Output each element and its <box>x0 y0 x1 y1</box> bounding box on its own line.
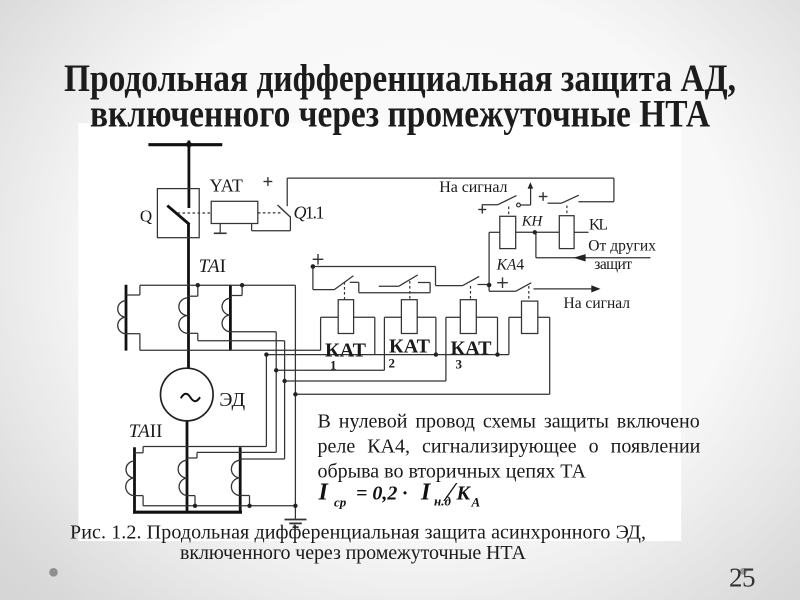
svg-text:А: А <box>471 495 481 510</box>
svg-text:К: К <box>456 483 472 505</box>
svg-text:На сигнал: На сигнал <box>564 295 631 312</box>
svg-text:3: 3 <box>456 357 463 372</box>
svg-text:КН: КН <box>521 214 544 230</box>
svg-text:включенного через промежуточны: включенного через промежуточные НТА <box>90 93 710 136</box>
svg-text:включенного через промежуточны: включенного через промежуточные НТА <box>180 542 527 564</box>
svg-text:1: 1 <box>330 358 337 373</box>
svg-text:KL: KL <box>589 216 608 233</box>
svg-text:ТАII: ТАII <box>129 421 163 442</box>
svg-text:Рис. 1.2. Продольная дифференц: Рис. 1.2. Продольная дифференциальная за… <box>70 521 646 543</box>
svg-text:В нулевой провод схемы защиты: В нулевой провод схемы защиты включено <box>318 411 700 433</box>
svg-text:защит: защит <box>594 256 632 273</box>
svg-text:I: I <box>420 480 432 506</box>
svg-text:Q: Q <box>140 207 152 226</box>
svg-text:ТАI: ТАI <box>199 256 226 277</box>
svg-text:ср: ср <box>334 495 347 510</box>
svg-text:реле КА4, сигнализирующее о по: реле КА4, сигнализирующее о появлении <box>318 436 701 458</box>
svg-text:25: 25 <box>729 563 756 593</box>
svg-text:= 0,2 ·: = 0,2 · <box>356 483 407 505</box>
svg-text:ЭД: ЭД <box>219 389 245 411</box>
svg-text:Q1.1: Q1.1 <box>294 203 325 223</box>
svg-text:На сигнал: На сигнал <box>439 179 507 196</box>
svg-text:КА4: КА4 <box>496 257 525 274</box>
svg-text:КАТ: КАТ <box>389 336 431 358</box>
svg-text:2: 2 <box>389 356 396 371</box>
svg-text:YAT: YAT <box>210 176 243 196</box>
svg-text:I: I <box>318 480 330 506</box>
svg-text:От других: От других <box>588 237 656 254</box>
